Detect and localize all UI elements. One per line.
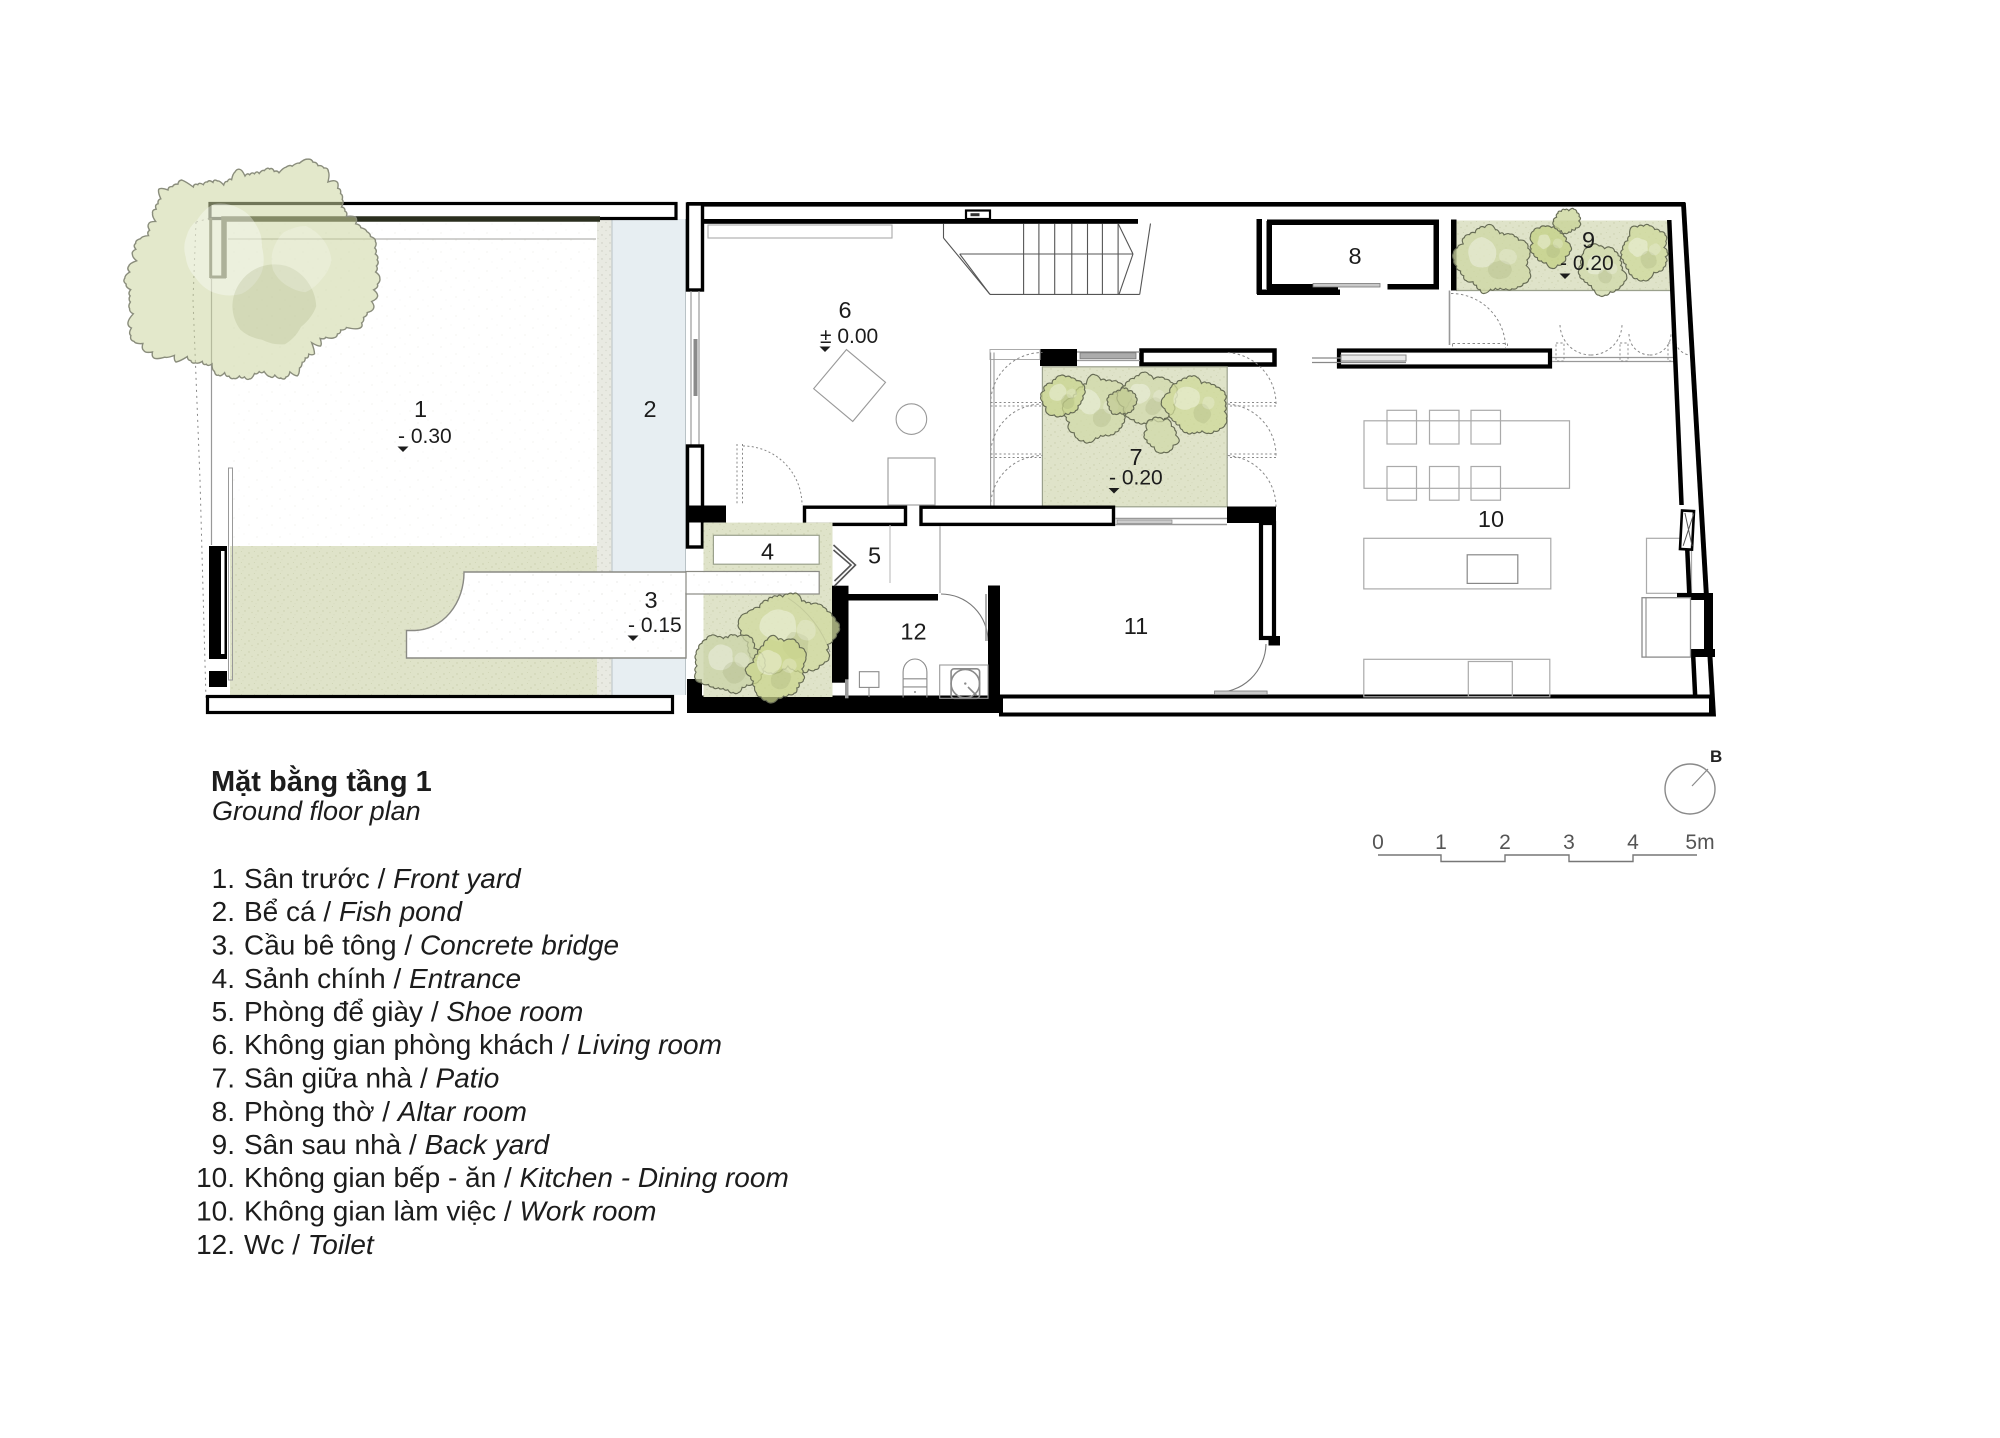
svg-text:2: 2 bbox=[1499, 831, 1511, 854]
svg-text:6: 6 bbox=[838, 297, 851, 323]
svg-text:- 0.20: - 0.20 bbox=[1560, 252, 1614, 275]
svg-text:- 0.15: - 0.15 bbox=[628, 614, 682, 637]
svg-text:Phòng thờ / Altar room: Phòng thờ / Altar room bbox=[244, 1096, 527, 1127]
svg-text:0: 0 bbox=[1372, 831, 1384, 854]
svg-text:B: B bbox=[1710, 747, 1722, 766]
svg-text:Wc / Toilet: Wc / Toilet bbox=[244, 1229, 375, 1260]
svg-text:Cầu bê tông / Concrete bridge: Cầu bê tông / Concrete bridge bbox=[244, 930, 619, 961]
svg-text:7.: 7. bbox=[212, 1063, 235, 1094]
svg-text:12: 12 bbox=[900, 619, 926, 645]
svg-text:Sân giữa nhà / Patio: Sân giữa nhà / Patio bbox=[244, 1063, 499, 1094]
svg-text:4: 4 bbox=[1627, 831, 1639, 854]
svg-text:Sân trước / Front yard: Sân trước / Front yard bbox=[244, 863, 522, 894]
svg-text:± 0.00: ± 0.00 bbox=[820, 325, 878, 348]
svg-text:Không gian phòng khách / Livin: Không gian phòng khách / Living room bbox=[244, 1029, 722, 1060]
svg-text:2.: 2. bbox=[212, 896, 235, 927]
svg-text:- 0.20: - 0.20 bbox=[1109, 467, 1163, 490]
svg-text:9.: 9. bbox=[212, 1129, 235, 1160]
svg-text:5.: 5. bbox=[212, 996, 235, 1027]
svg-text:5m: 5m bbox=[1685, 831, 1714, 854]
svg-text:Phòng để giày / Shoe room: Phòng để giày / Shoe room bbox=[244, 996, 583, 1027]
svg-text:11: 11 bbox=[1124, 613, 1148, 639]
svg-text:- 0.30: - 0.30 bbox=[398, 425, 452, 448]
svg-text:Không gian bếp - ăn / Kitchen: Không gian bếp - ăn / Kitchen - Dining r… bbox=[244, 1162, 789, 1193]
svg-text:9: 9 bbox=[1582, 227, 1595, 253]
svg-text:3.: 3. bbox=[212, 930, 235, 961]
svg-text:Sảnh chính / Entrance: Sảnh chính / Entrance bbox=[244, 963, 521, 994]
svg-text:10: 10 bbox=[1478, 506, 1504, 532]
svg-text:5: 5 bbox=[868, 543, 881, 569]
svg-text:Bể cá / Fish pond: Bể cá / Fish pond bbox=[244, 896, 463, 927]
svg-text:Không gian làm việc / Work roo: Không gian làm việc / Work room bbox=[244, 1196, 656, 1227]
svg-text:4: 4 bbox=[761, 539, 774, 565]
svg-text:2: 2 bbox=[643, 396, 656, 422]
svg-text:3: 3 bbox=[1563, 831, 1575, 854]
svg-text:12.: 12. bbox=[196, 1229, 235, 1260]
svg-text:Ground floor plan: Ground floor plan bbox=[212, 796, 421, 826]
svg-text:8: 8 bbox=[1348, 243, 1361, 269]
svg-text:1.: 1. bbox=[212, 863, 235, 894]
svg-text:4.: 4. bbox=[212, 963, 235, 994]
svg-text:10.: 10. bbox=[196, 1162, 235, 1193]
svg-text:1: 1 bbox=[1435, 831, 1447, 854]
svg-text:Sân sau nhà / Back yard: Sân sau nhà / Back yard bbox=[244, 1129, 551, 1160]
svg-text:Mặt bằng tầng 1: Mặt bằng tầng 1 bbox=[211, 764, 432, 798]
svg-text:6.: 6. bbox=[212, 1029, 235, 1060]
svg-text:1: 1 bbox=[414, 396, 427, 422]
svg-text:3: 3 bbox=[644, 587, 657, 613]
svg-text:8.: 8. bbox=[212, 1096, 235, 1127]
svg-text:10.: 10. bbox=[196, 1196, 235, 1227]
